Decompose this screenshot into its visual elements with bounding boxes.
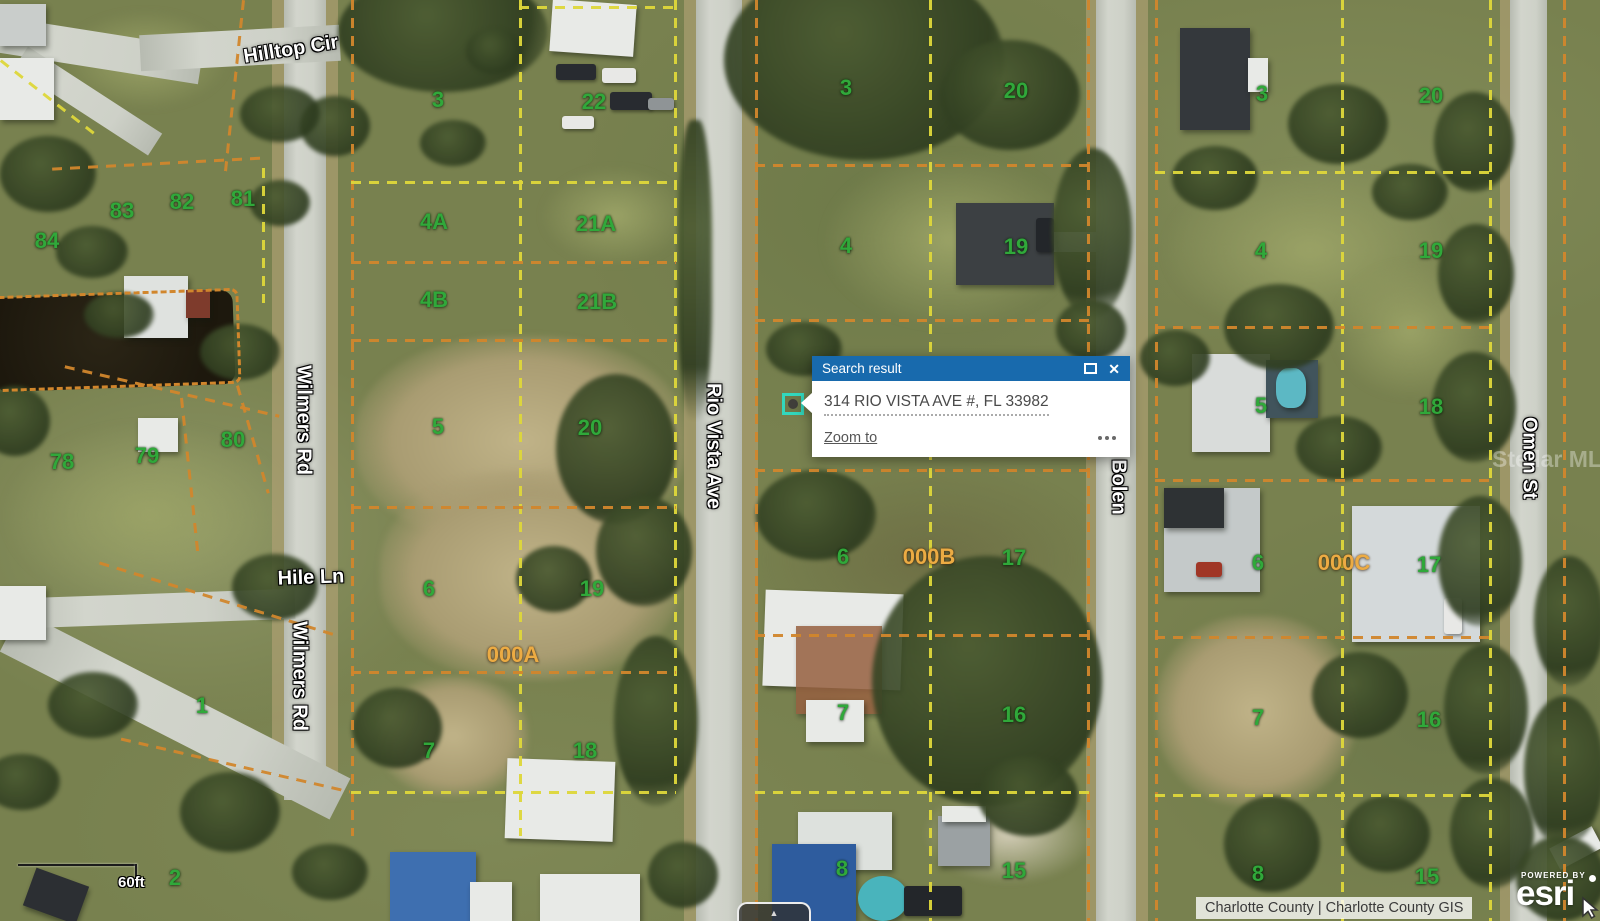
parcel-number-label: 3 xyxy=(1256,81,1268,107)
car xyxy=(610,92,652,110)
parcel-number-label: 84 xyxy=(35,228,59,254)
block-label: 000C xyxy=(1318,550,1371,576)
attribution-text: Charlotte County | Charlotte County GIS xyxy=(1196,897,1472,919)
building xyxy=(1164,488,1224,528)
zoom-to-link[interactable]: Zoom to xyxy=(824,430,877,446)
building xyxy=(1180,28,1250,130)
street-label: Omen St xyxy=(1518,417,1541,499)
parcel-number-label: 3 xyxy=(432,87,444,113)
marker-dot xyxy=(788,399,798,409)
parcel-number-label: 19 xyxy=(1004,234,1028,260)
search-result-popup: Search result ✕ 314 RIO VISTA AVE #, FL … xyxy=(812,356,1130,457)
parcel-number-label: 16 xyxy=(1417,707,1441,733)
parcel-number-label: 20 xyxy=(1419,83,1443,109)
parcel-number-label: 8 xyxy=(1252,861,1264,887)
parcel-number-label: 7 xyxy=(837,700,849,726)
parcel-number-label: 8 xyxy=(836,856,848,882)
parcel-number-label: 5 xyxy=(432,414,444,440)
parcel-number-label: 4B xyxy=(420,287,448,313)
expand-panel-button[interactable]: ▲ xyxy=(737,902,811,921)
parcel-number-label: 83 xyxy=(110,198,134,224)
parcel-number-label: 5 xyxy=(1255,393,1267,419)
street-label: Bolen xyxy=(1107,459,1130,515)
more-options-icon[interactable] xyxy=(1098,436,1116,440)
building xyxy=(540,874,640,921)
maximize-icon[interactable] xyxy=(1084,363,1097,374)
street-label: Hile Ln xyxy=(277,565,344,590)
parcel-number-label: 17 xyxy=(1417,552,1441,578)
block-label: 000A xyxy=(487,642,540,668)
map-viewport[interactable]: 84838281787980123224A21A4B21B520619000A7… xyxy=(0,0,1600,921)
parcel-number-label: 78 xyxy=(50,449,74,475)
parcel-number-label: 4 xyxy=(1255,238,1267,264)
street-label: Wilmers Rd xyxy=(292,365,315,475)
shed xyxy=(942,806,986,822)
esri-logo-dot xyxy=(1589,875,1596,882)
parcel-number-label: 19 xyxy=(1419,238,1443,264)
car xyxy=(556,64,596,80)
car xyxy=(562,116,594,129)
street-label: Rio Vista Ave xyxy=(702,383,725,509)
parcel-number-label: 79 xyxy=(135,443,159,469)
parcel-number-label: 15 xyxy=(1002,858,1026,884)
parcel-number-label: 18 xyxy=(1419,394,1443,420)
parcel-number-label: 16 xyxy=(1002,702,1026,728)
chevron-up-icon: ▲ xyxy=(770,908,779,918)
car xyxy=(602,68,636,83)
parcel-number-label: 80 xyxy=(221,427,245,453)
mouse-cursor-icon xyxy=(1581,896,1600,919)
building xyxy=(390,852,476,921)
search-result-address: 314 RIO VISTA AVE #, FL 33982 xyxy=(824,393,1049,416)
building xyxy=(0,4,46,46)
parcel-number-label: 17 xyxy=(1002,545,1026,571)
parcel-number-label: 82 xyxy=(170,189,194,215)
car xyxy=(904,886,962,916)
pool xyxy=(858,876,908,921)
esri-logo: esri xyxy=(1516,874,1574,914)
parcel-number-label: 4 xyxy=(840,233,852,259)
parcel-number-label: 81 xyxy=(231,186,255,212)
popup-header[interactable]: Search result ✕ xyxy=(812,356,1130,381)
parcel-number-label: 7 xyxy=(423,738,435,764)
parcel-number-label: 19 xyxy=(580,576,604,602)
parcel-number-label: 20 xyxy=(1004,78,1028,104)
car xyxy=(1196,562,1222,577)
street-label: Wilmers Rd xyxy=(288,621,311,731)
parcel-number-label: 4A xyxy=(420,209,448,235)
block-label: 000B xyxy=(903,544,956,570)
parcel-number-label: 21A xyxy=(576,211,616,237)
building xyxy=(0,586,46,640)
scale-bar-label: 60ft xyxy=(118,874,145,891)
shed xyxy=(938,816,990,866)
parcel-number-label: 15 xyxy=(1415,864,1439,890)
stellar-mls-watermark: Stellar MLS xyxy=(1492,446,1600,473)
building xyxy=(470,882,512,921)
parcel-number-label: 21B xyxy=(577,289,617,315)
close-icon[interactable]: ✕ xyxy=(1108,362,1120,376)
car xyxy=(648,98,674,110)
parcel-number-label: 20 xyxy=(578,415,602,441)
scale-bar xyxy=(18,864,137,866)
parcel-number-label: 18 xyxy=(573,738,597,764)
popup-pointer xyxy=(801,392,813,414)
parcel-number-label: 6 xyxy=(837,544,849,570)
parcel-number-label: 7 xyxy=(1252,705,1264,731)
pool xyxy=(1276,368,1306,408)
parcel-number-label: 6 xyxy=(423,576,435,602)
building xyxy=(806,700,864,742)
parcel-number-label: 6 xyxy=(1252,550,1264,576)
parcel-number-label: 22 xyxy=(582,89,606,115)
popup-footer: Zoom to xyxy=(824,430,1116,446)
parcel-number-label: 3 xyxy=(840,75,852,101)
popup-title: Search result xyxy=(822,361,1084,376)
popup-body: 314 RIO VISTA AVE #, FL 33982 Zoom to xyxy=(812,381,1130,457)
parcel-number-label: 1 xyxy=(196,693,208,719)
parcel-number-label: 2 xyxy=(169,865,181,891)
